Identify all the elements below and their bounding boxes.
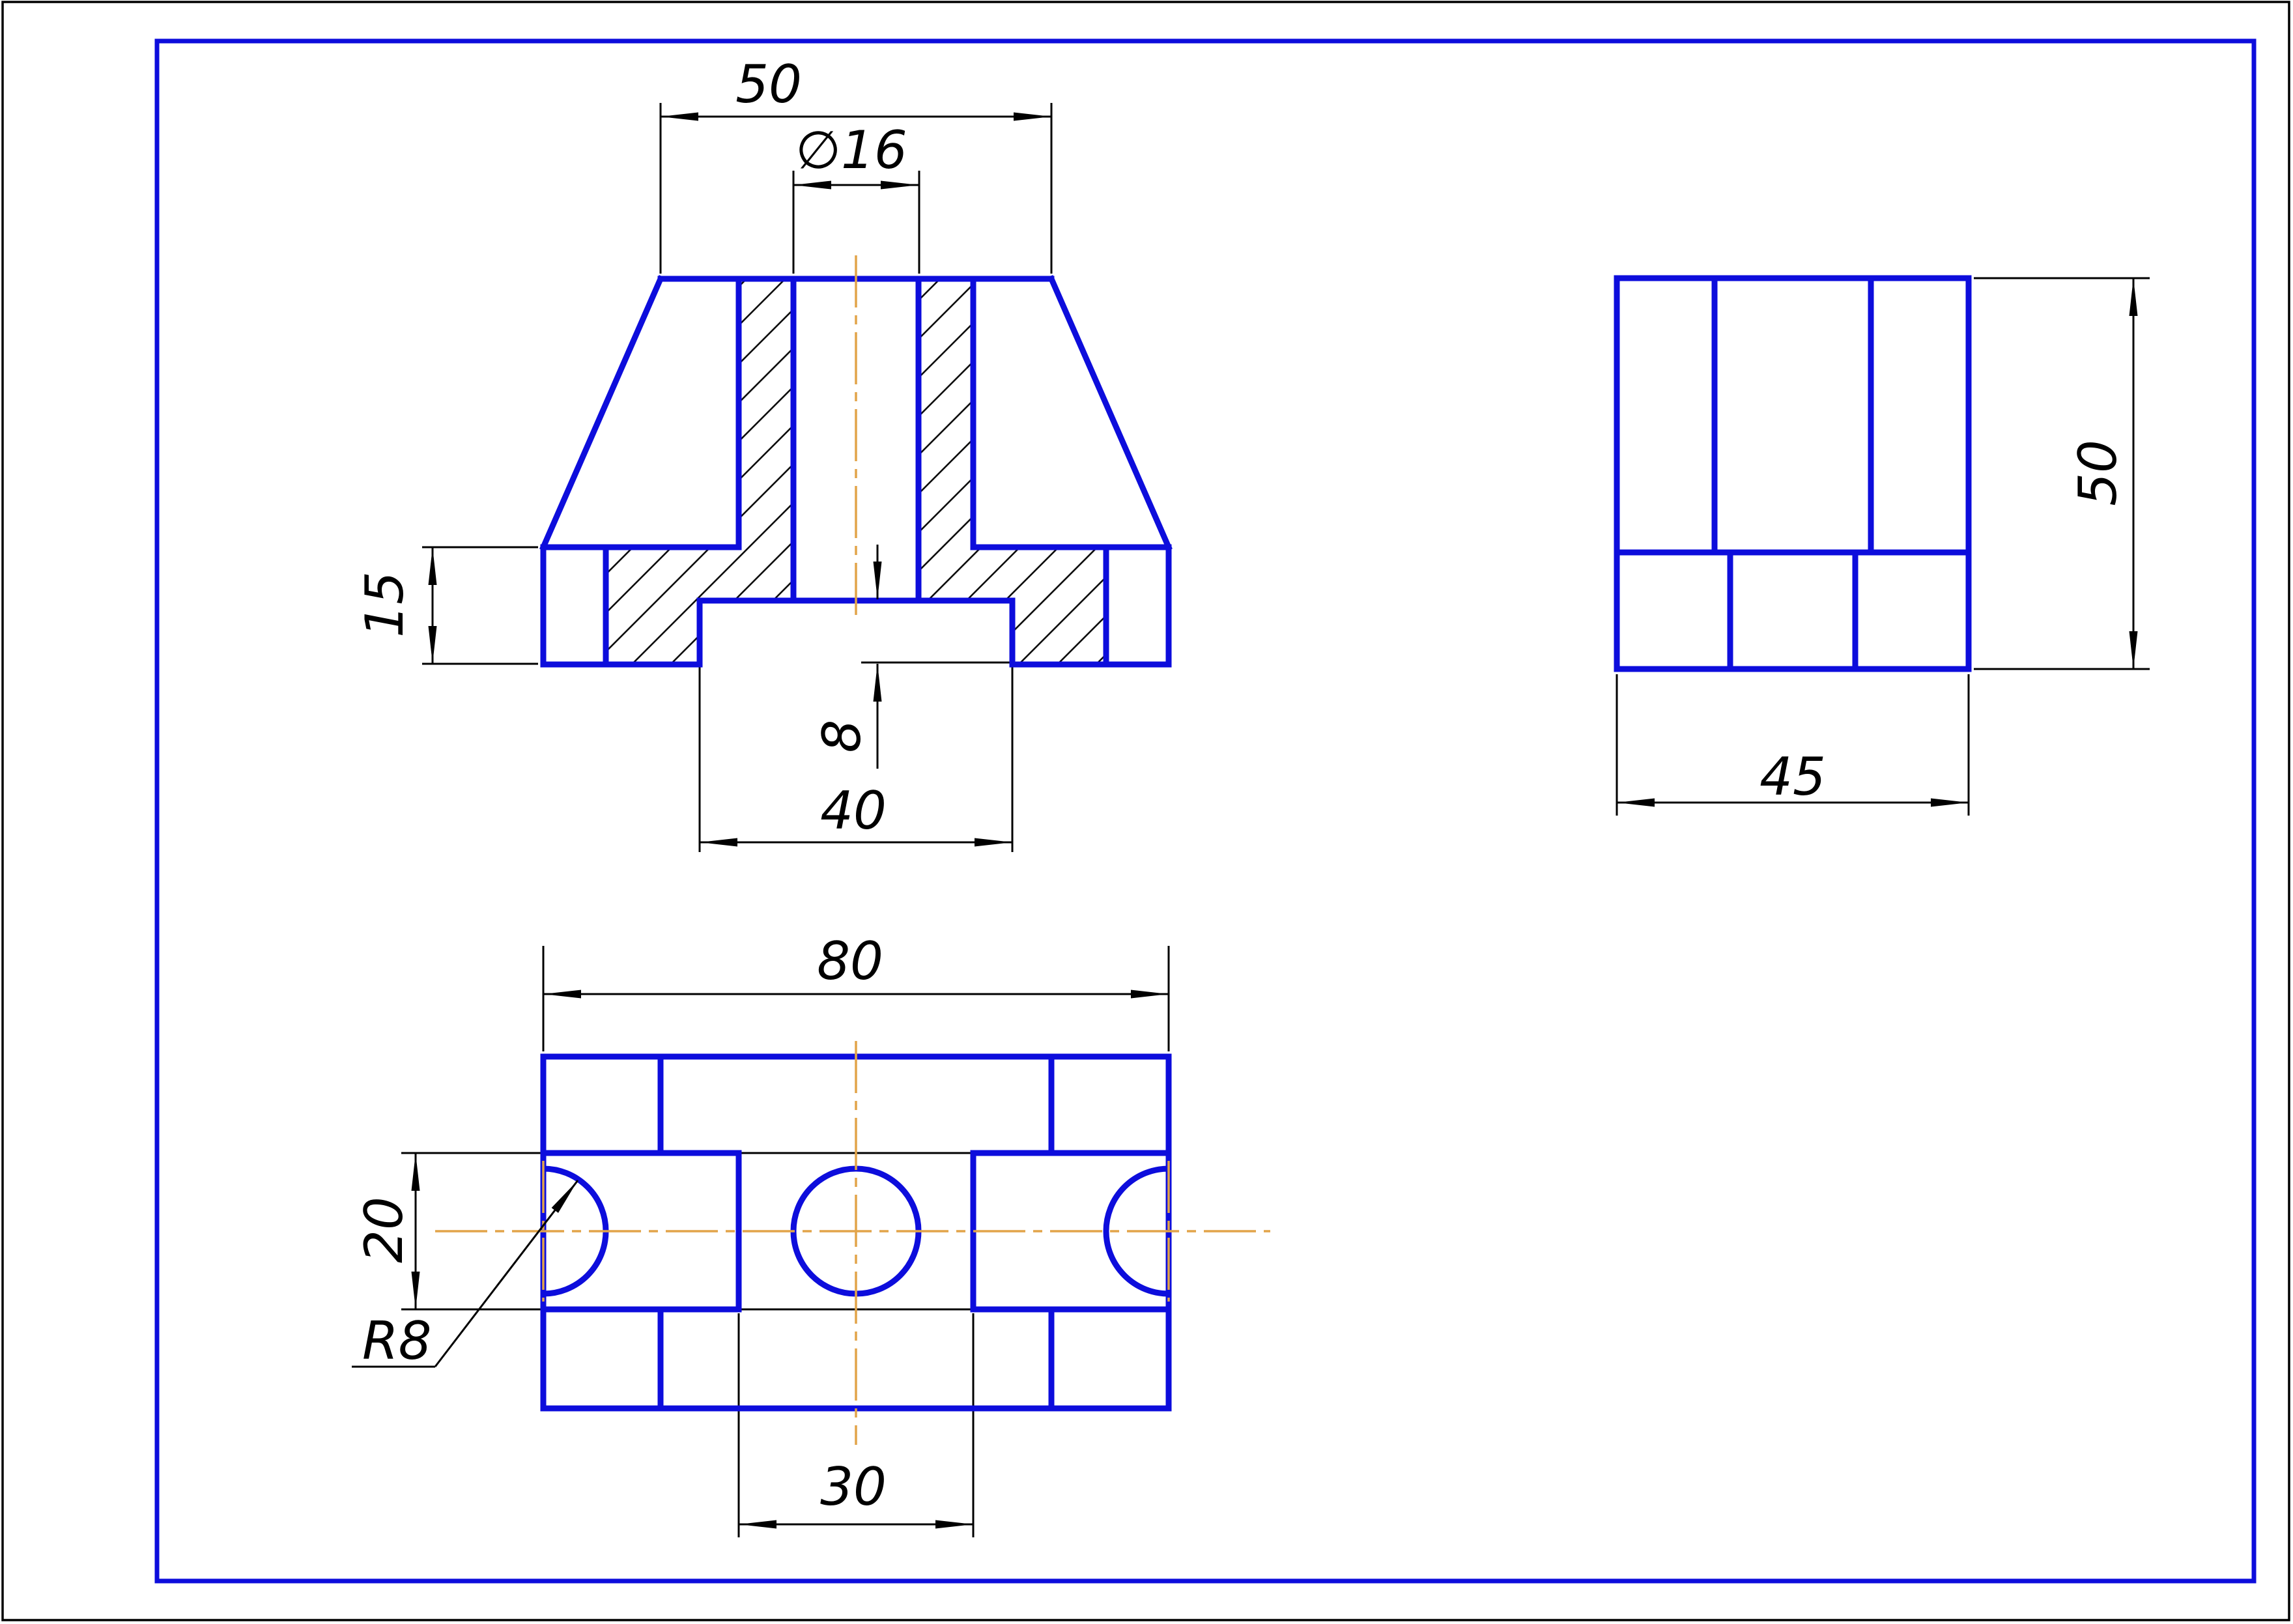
side-view: 50 45 xyxy=(1617,278,2150,816)
dim-text-overall-height: 50 xyxy=(2068,440,2128,506)
front-section-view: 50 ∅16 15 8 40 xyxy=(354,54,1169,852)
dim-text-depth: 45 xyxy=(1759,747,1826,807)
dim-text-base-height: 15 xyxy=(354,571,415,638)
side-part-edges xyxy=(1617,278,1969,669)
dim-text-top-width: 50 xyxy=(735,54,802,115)
dim-text-slot-height: 8 xyxy=(812,720,872,753)
top-view: 80 20 R8 30 xyxy=(352,931,1270,1537)
sheet-inner-frame xyxy=(157,41,2254,1581)
drawing-sheet: 50 ∅16 15 8 40 80 20 R8 30 xyxy=(0,0,2293,1624)
radius-leader-line xyxy=(435,1180,578,1367)
sheet-outer-border xyxy=(3,2,2289,1620)
dim-text-overall-width: 80 xyxy=(817,931,883,991)
dim-text-boss-width: 30 xyxy=(820,1457,887,1517)
top-center-lines xyxy=(435,1041,1270,1445)
dim-text-channel-width: 20 xyxy=(354,1197,414,1263)
dim-text-fillet-radius: R8 xyxy=(362,1311,431,1371)
dim-text-slot-width: 40 xyxy=(820,780,887,841)
side-extension-lines xyxy=(1617,278,2150,816)
dim-text-hole-diameter: ∅16 xyxy=(795,120,907,180)
side-part-outline xyxy=(1617,278,1969,669)
drawing-canvas: 50 ∅16 15 8 40 80 20 R8 30 xyxy=(0,0,2293,1624)
top-extension-lines xyxy=(352,946,1169,1537)
